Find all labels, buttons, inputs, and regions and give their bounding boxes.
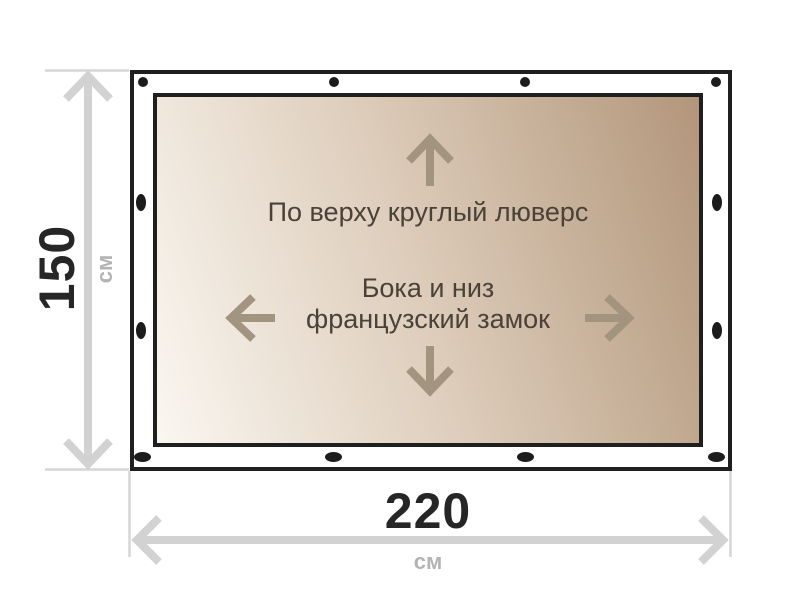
sides-bottom-label: Бока и низ французский замок bbox=[153, 273, 703, 335]
sides-bottom-label-line2: французский замок bbox=[153, 304, 703, 335]
grommet-dot bbox=[138, 77, 148, 87]
grommet-dot bbox=[134, 452, 151, 462]
width-dimension-value: 220 bbox=[328, 484, 528, 538]
grommet-dot bbox=[517, 452, 534, 462]
sides-bottom-label-line1: Бока и низ bbox=[153, 273, 703, 304]
height-dimension-unit: см bbox=[90, 209, 120, 329]
grommet-dot bbox=[520, 77, 530, 87]
grommet-dot bbox=[325, 452, 342, 462]
grommet-dot bbox=[329, 77, 339, 87]
grommet-dot bbox=[712, 194, 722, 211]
tarp-fabric-panel bbox=[153, 93, 703, 447]
grommet-dot bbox=[136, 194, 146, 211]
tarp-dimension-diagram: По верху круглый люверс Бока и низ франц… bbox=[0, 0, 800, 600]
width-dimension-unit: см bbox=[353, 549, 503, 575]
height-dimension-value: 150 bbox=[29, 188, 85, 348]
grommet-dot bbox=[712, 322, 722, 339]
grommet-dot bbox=[708, 452, 725, 462]
grommet-dot bbox=[136, 322, 146, 339]
top-edge-label: По верху круглый люверс bbox=[153, 197, 703, 228]
grommet-dot bbox=[711, 77, 721, 87]
